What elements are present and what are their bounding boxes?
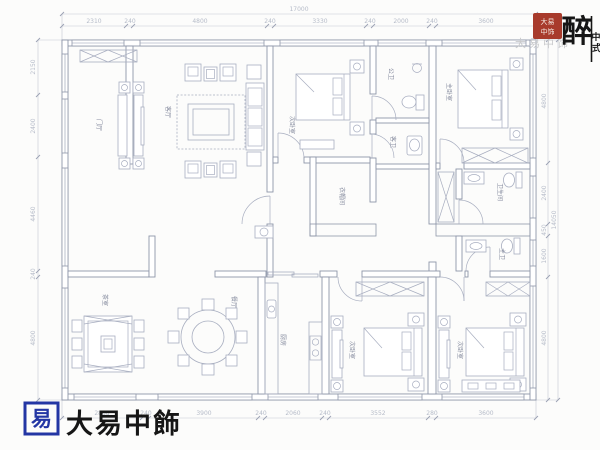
dim-label: 240 [319,410,331,417]
guest-bath-fixtures [402,64,424,111]
brand-sub-top: 中 [591,31,600,43]
dim-label: 240 [255,410,267,417]
dim-label: 3600 [478,18,493,25]
corner-brand: 大易中饰 大易 中饰 醉 中 式 [515,13,600,62]
room-label-kitchen: 厨房 [279,334,287,346]
dim-label: 450 [541,224,548,236]
dim-label: 3330 [312,18,327,25]
sliding-door-kitchen [268,272,318,277]
dim-label: 240 [426,18,438,25]
room-label-dining: 餐厅 [230,296,238,308]
seal-text-line1: 大易 [541,17,555,26]
dim-label: 4460 [30,206,37,221]
brand-name-calligraphy: 大易中飾 [66,408,182,440]
bedroom-bottom-left [331,282,424,392]
dim-label: 2400 [541,185,548,200]
dim-label: 2060 [285,410,300,417]
seal-text-line2: 中饰 [541,27,555,36]
dim-label: 240 [264,18,276,25]
dim-label: 2310 [86,18,101,25]
upper-bath-fixtures [464,172,522,188]
room-label-tea-room: 茶室 [101,294,109,306]
dim-label: 1600 [541,248,548,263]
room-label-bedroom4: 次卧室 [456,341,464,359]
dining-round-table [168,299,247,375]
room-label-master-bedroom: 主卧室 [445,83,453,101]
bedroom-bottom-right [438,282,530,392]
room-label-living: 客厅 [164,106,172,118]
room-label-bathroom: 卫生间 [496,183,504,201]
room-label-guest-bath: 公卫 [387,68,394,80]
bedroom-top-middle-bed [296,60,364,149]
doors [242,96,490,301]
dim-label: 4800 [192,18,207,25]
dim-right-overall: 14050 [551,210,558,229]
brand-sub-bottom: 式 [592,42,600,54]
brand-main-character: 醉 [562,14,593,50]
master-bedroom-bed [458,58,523,140]
dim-label: 240 [364,18,376,25]
right-closet-strip [438,172,454,222]
dim-label: 4800 [30,330,37,345]
dim-label: 240 [124,18,136,25]
room-label-second-bath: 客卫 [389,136,397,148]
dim-top-overall: 17000 [289,6,308,13]
room-label-bedroom2: 次卧室 [288,116,296,134]
room-label-foyer: 门厅 [95,119,103,131]
dim-label: 3600 [478,410,493,417]
tea-room-table [72,316,144,372]
master-bedroom-wardrobe [462,148,528,163]
dim-label: 240 [30,268,37,280]
dim-label: 4800 [541,330,548,345]
logo-mark: 易 [31,406,52,431]
room-label-bedroom3: 次卧室 [348,341,356,359]
room-label-master-bath: 主卫 [498,248,506,260]
second-bath-sink [407,136,422,155]
footer-brand: 易 大易中飾 [25,403,182,440]
dim-label: 3900 [196,410,211,417]
room-label-cloakroom: 衣帽间 [338,187,346,205]
dim-label: 3552 [370,410,385,417]
kitchen-counters [265,283,322,394]
dim-label: 2000 [393,18,408,25]
dim-label: 280 [426,410,438,417]
dim-label: 2150 [30,59,37,74]
floor-plan-canvas: 17000 2310 240 4800 240 3330 240 2000 24… [0,0,600,450]
living-sofa-set [177,64,264,178]
hall-cabinet [255,226,273,238]
floor-plan-page: 17000 2310 240 4800 240 3330 240 2000 24… [0,0,600,450]
master-bath-fixtures [466,238,520,254]
dim-label: 4800 [541,93,548,108]
dim-label: 2400 [30,118,37,133]
